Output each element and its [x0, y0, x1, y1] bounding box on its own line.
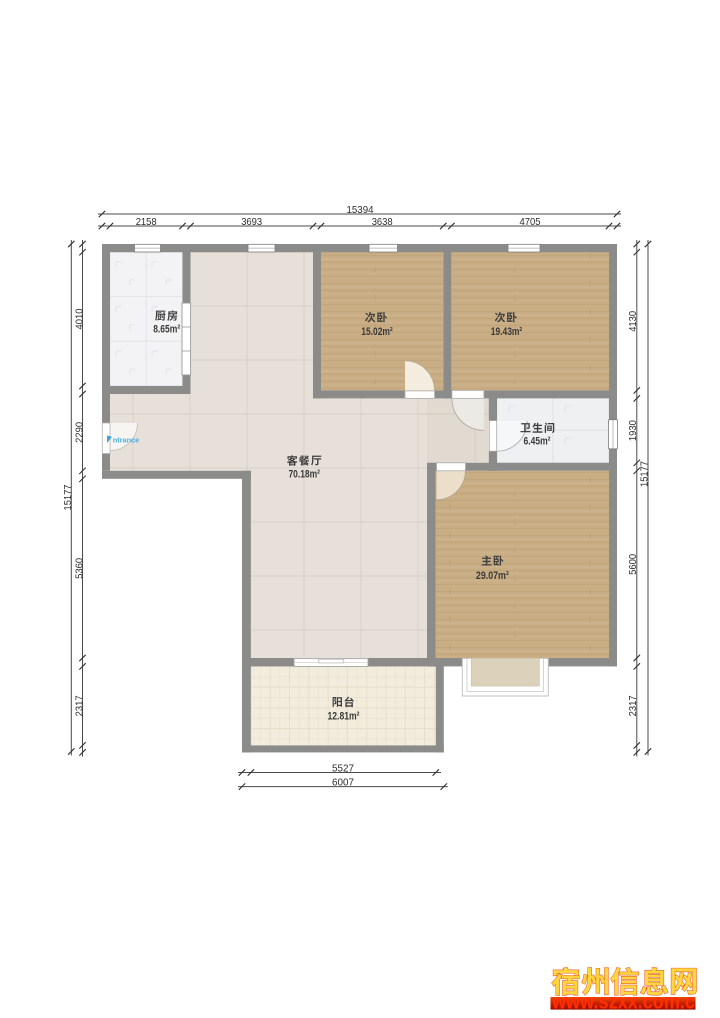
- svg-text:15177: 15177: [639, 461, 650, 487]
- svg-text:1930: 1930: [628, 420, 639, 441]
- svg-text:15394: 15394: [347, 205, 374, 216]
- svg-text:2317: 2317: [628, 695, 639, 716]
- svg-text:6.45m²: 6.45m²: [524, 436, 551, 448]
- svg-text:15.02m²: 15.02m²: [361, 326, 393, 338]
- svg-text:6007: 6007: [332, 777, 354, 788]
- svg-text:4705: 4705: [520, 217, 541, 228]
- svg-text:2317: 2317: [74, 695, 85, 716]
- svg-text:www.szxx.com.c: www.szxx.com.c: [551, 990, 695, 1014]
- svg-text:2290: 2290: [74, 422, 85, 443]
- svg-text:29.07m²: 29.07m²: [476, 570, 509, 582]
- svg-text:19.43m²: 19.43m²: [491, 326, 523, 338]
- svg-text:ntrance: ntrance: [113, 436, 139, 445]
- svg-text:5527: 5527: [332, 763, 354, 774]
- svg-text:15177: 15177: [63, 484, 74, 510]
- svg-text:4010: 4010: [74, 308, 85, 329]
- svg-text:5600: 5600: [628, 554, 639, 575]
- svg-text:2158: 2158: [136, 217, 157, 228]
- svg-text:70.18m²: 70.18m²: [288, 469, 320, 481]
- svg-text:8.65m²: 8.65m²: [153, 323, 180, 335]
- svg-text:4130: 4130: [628, 310, 639, 331]
- svg-text:3693: 3693: [241, 217, 262, 228]
- svg-text:5360: 5360: [74, 558, 85, 579]
- svg-text:3638: 3638: [372, 217, 393, 228]
- svg-text:12.81m²: 12.81m²: [328, 711, 360, 723]
